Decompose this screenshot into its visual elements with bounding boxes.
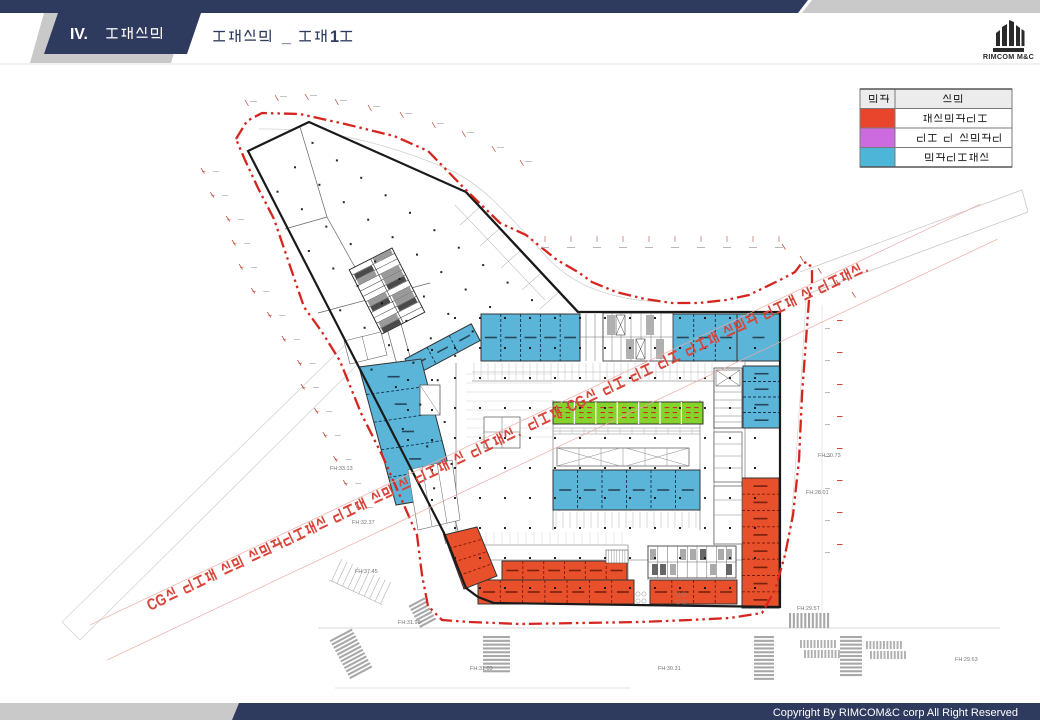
svg-text:RIMCOM M&C: RIMCOM M&C: [983, 52, 1034, 61]
svg-text:FH:31.99: FH:31.99: [398, 620, 421, 626]
svg-text:FH:33.13: FH:33.13: [330, 466, 353, 472]
svg-text:FH:30.31: FH:30.31: [658, 666, 681, 672]
svg-text:FH:29.5T: FH:29.5T: [797, 606, 821, 612]
svg-text:FH:37.45: FH:37.45: [355, 569, 378, 575]
svg-text:FH:31.03: FH:31.03: [470, 666, 493, 672]
svg-text:Copyright By RIMCOM&C corp All: Copyright By RIMCOM&C corp All Right Res…: [773, 707, 1018, 719]
svg-text:1: 1: [330, 28, 339, 46]
svg-text:_: _: [281, 28, 292, 46]
svg-text:FH:28.01: FH:28.01: [806, 490, 829, 496]
svg-text:IV.: IV.: [70, 26, 88, 43]
svg-text:FH:29.63: FH:29.63: [955, 657, 978, 663]
svg-text:FH:30.73: FH:30.73: [818, 453, 841, 459]
svg-text:CG: CG: [144, 591, 169, 615]
svg-text:FH:32.37: FH:32.37: [352, 520, 375, 526]
